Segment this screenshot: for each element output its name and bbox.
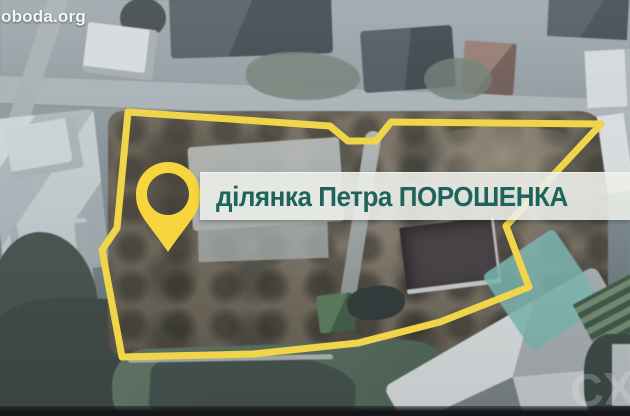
program-watermark: СХ — [568, 360, 630, 416]
caption-band: ділянка Петра ПОРОШЕНКА — [200, 172, 630, 220]
map-pin-icon — [136, 162, 200, 252]
plot-caption: ділянка Петра ПОРОШЕНКА — [216, 173, 568, 220]
channel-watermark: oboda.org — [1, 7, 86, 27]
video-frame: ділянка Петра ПОРОШЕНКА oboda.org СХ — [0, 0, 630, 416]
